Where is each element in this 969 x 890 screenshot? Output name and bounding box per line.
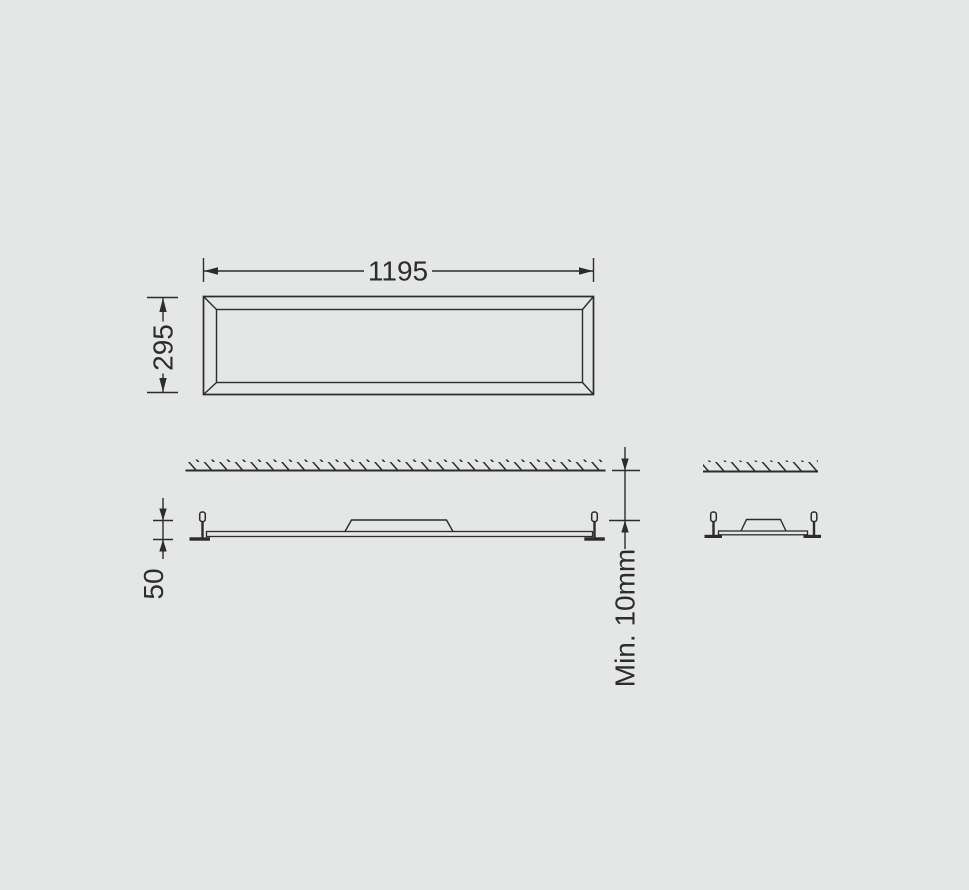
mounting-clip-left [711,512,717,537]
arrowhead-down-icon [621,459,628,471]
clip-head [811,512,817,522]
hatch-strokes [186,460,606,471]
ceiling-clearance-value: Min. 10mm [610,549,641,687]
arrowhead-up-icon [159,298,166,312]
ceiling-grid-tbar-right [804,535,822,538]
panel-profile [207,532,593,537]
dimension-fixture-height: 50 [138,498,173,600]
side-view [186,460,606,541]
panel-face-outline [204,297,594,395]
clip-head [200,512,206,522]
arrowhead-down-icon [159,509,166,521]
clip-head [711,512,717,522]
clip-head [592,512,598,522]
arrowhead-up-icon [159,540,166,552]
mounting-clip-left [200,512,206,539]
panel-bevel-corner-top-right [583,297,594,310]
end-view [703,461,821,539]
ceiling-grid-tbar-left [190,537,211,540]
arrowhead-right-icon [579,267,593,274]
arrowhead-down-icon [159,378,166,392]
driver-box [345,520,453,532]
panel-width-value: 1195 [368,256,428,287]
ceiling-grid-tbar-left [705,535,723,538]
ceiling-hatch-long [186,460,606,471]
mounting-clip-right [811,512,817,537]
hatch-strokes [703,461,818,472]
panel-bevel-corner-bottom-right [583,383,594,395]
dimension-ceiling-clearance: Min. 10mm [609,447,641,687]
panel-bevel-inner-outline [217,310,583,383]
ceiling-grid-tbar-right [584,537,605,540]
panel-profile [719,531,808,535]
arrowhead-left-icon [204,267,218,274]
driver-box [741,520,786,532]
top-view [204,297,594,395]
technical-drawing: 1195 295 50 [0,0,969,890]
panel-bevel-corner-bottom-left [204,383,217,395]
panel-height-value: 295 [148,324,179,371]
arrowhead-up-icon [621,521,628,533]
dimension-panel-width: 1195 [204,256,594,287]
panel-bevel-corner-top-left [204,297,217,310]
dimension-panel-height: 295 [147,298,179,393]
fixture-height-value: 50 [138,568,169,599]
ceiling-hatch-short [703,461,818,472]
